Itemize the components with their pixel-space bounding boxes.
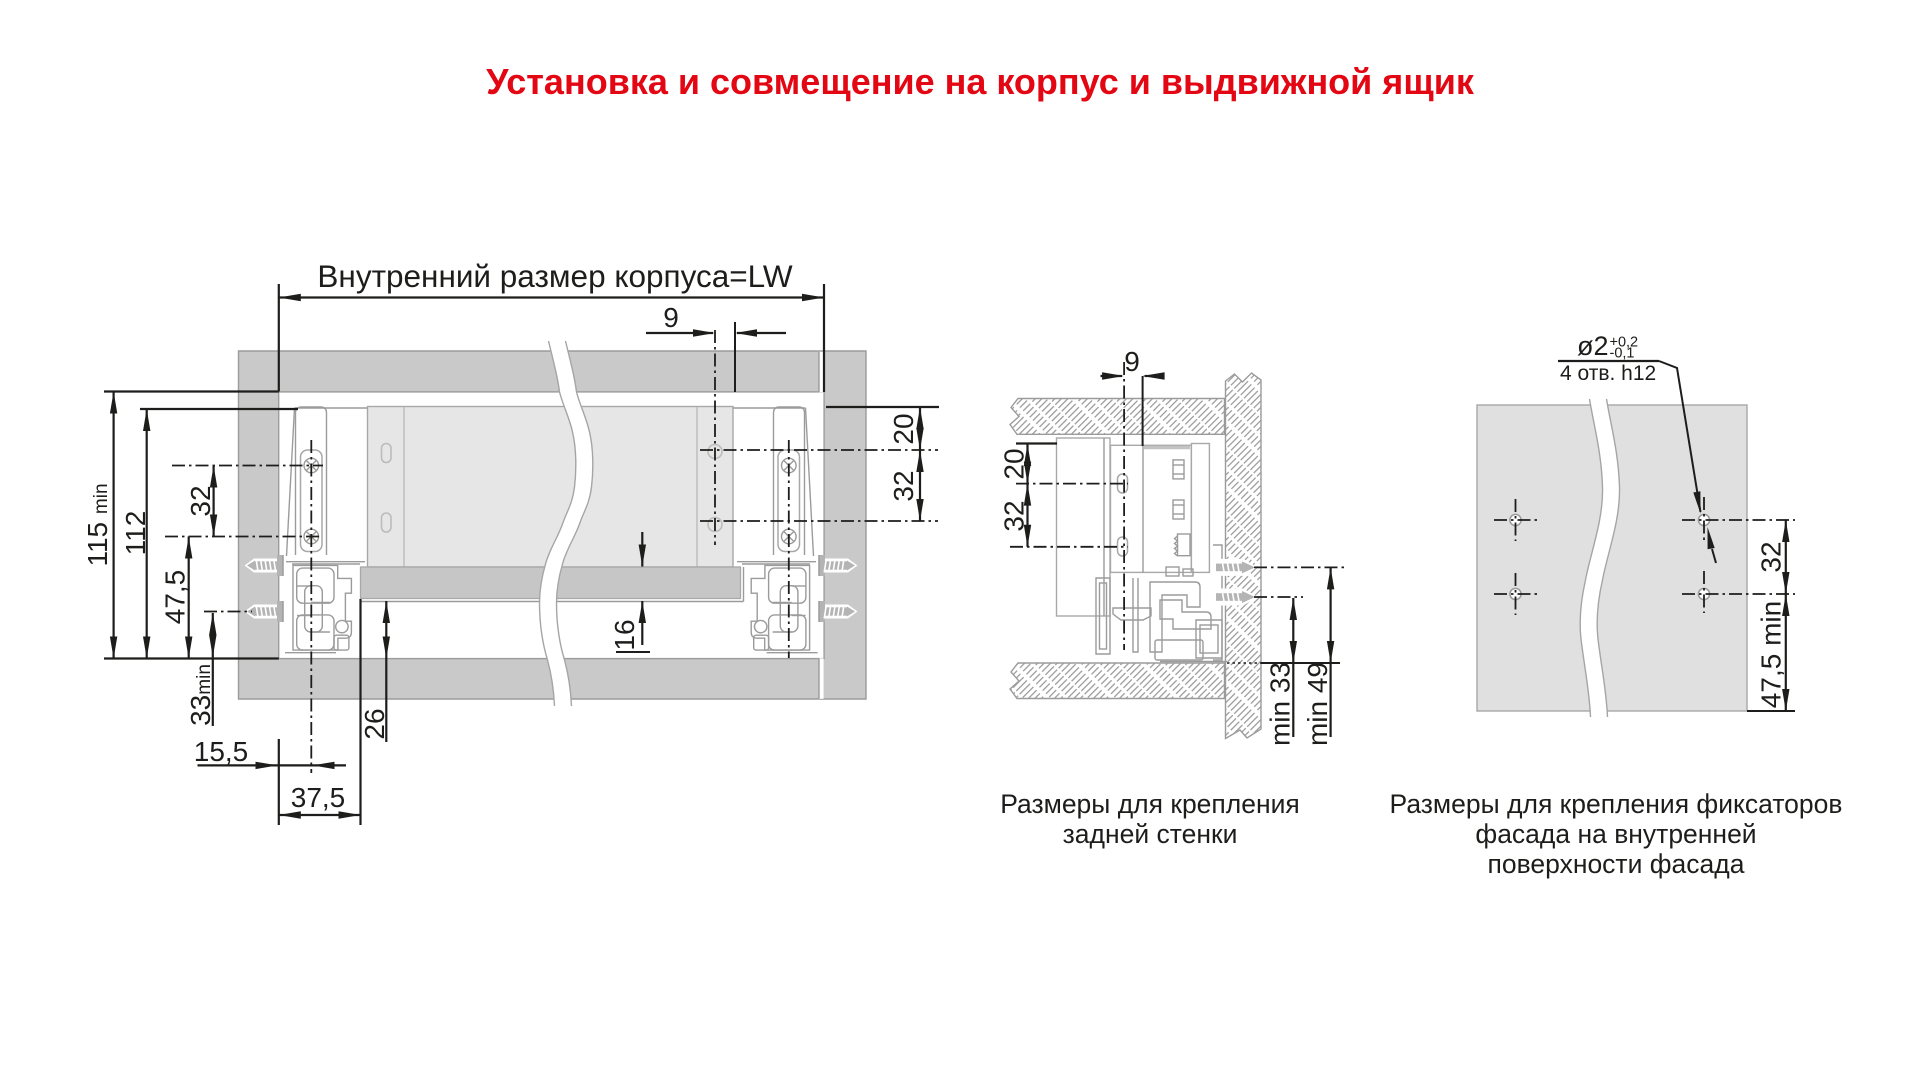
svg-text:32: 32 — [1756, 541, 1787, 572]
svg-text:15,5: 15,5 — [194, 736, 249, 767]
svg-text:32: 32 — [185, 485, 216, 516]
svg-text:37,5: 37,5 — [291, 782, 346, 813]
svg-text:задней стенки: задней стенки — [1063, 819, 1238, 849]
svg-text:ø2: ø2 — [1577, 331, 1609, 361]
svg-text:47,5: 47,5 — [160, 570, 191, 625]
svg-text:32: 32 — [999, 500, 1030, 531]
svg-text:9: 9 — [1124, 346, 1140, 377]
svg-text:min 49: min 49 — [1302, 662, 1333, 746]
svg-text:Внутренний размер корпуса=LW: Внутренний размер корпуса=LW — [317, 258, 792, 294]
svg-text:115 min: 115 min — [82, 483, 113, 566]
svg-text:-0,1: -0,1 — [1610, 346, 1635, 362]
svg-text:20: 20 — [999, 448, 1030, 479]
svg-text:112: 112 — [120, 511, 151, 556]
svg-text:32: 32 — [888, 470, 919, 501]
svg-text:9: 9 — [663, 302, 679, 333]
svg-text:поверхности фасада: поверхности фасада — [1488, 849, 1745, 879]
svg-text:47,5 min: 47,5 min — [1756, 601, 1787, 708]
svg-text:Размеры для крепления фиксатор: Размеры для крепления фиксаторов — [1390, 789, 1843, 819]
svg-text:20: 20 — [888, 413, 919, 444]
svg-text:Размеры для крепления: Размеры для крепления — [1000, 789, 1300, 819]
svg-text:26: 26 — [359, 708, 390, 739]
svg-text:33min: 33min — [185, 664, 216, 726]
svg-text:Установка и совмещение на корп: Установка и совмещение на корпус и выдви… — [486, 61, 1475, 102]
svg-text:16: 16 — [609, 619, 640, 650]
svg-text:min 33: min 33 — [1265, 662, 1296, 746]
svg-text:фасада на внутренней: фасада на внутренней — [1475, 819, 1756, 849]
svg-text:4 отв. h12: 4 отв. h12 — [1560, 362, 1656, 385]
